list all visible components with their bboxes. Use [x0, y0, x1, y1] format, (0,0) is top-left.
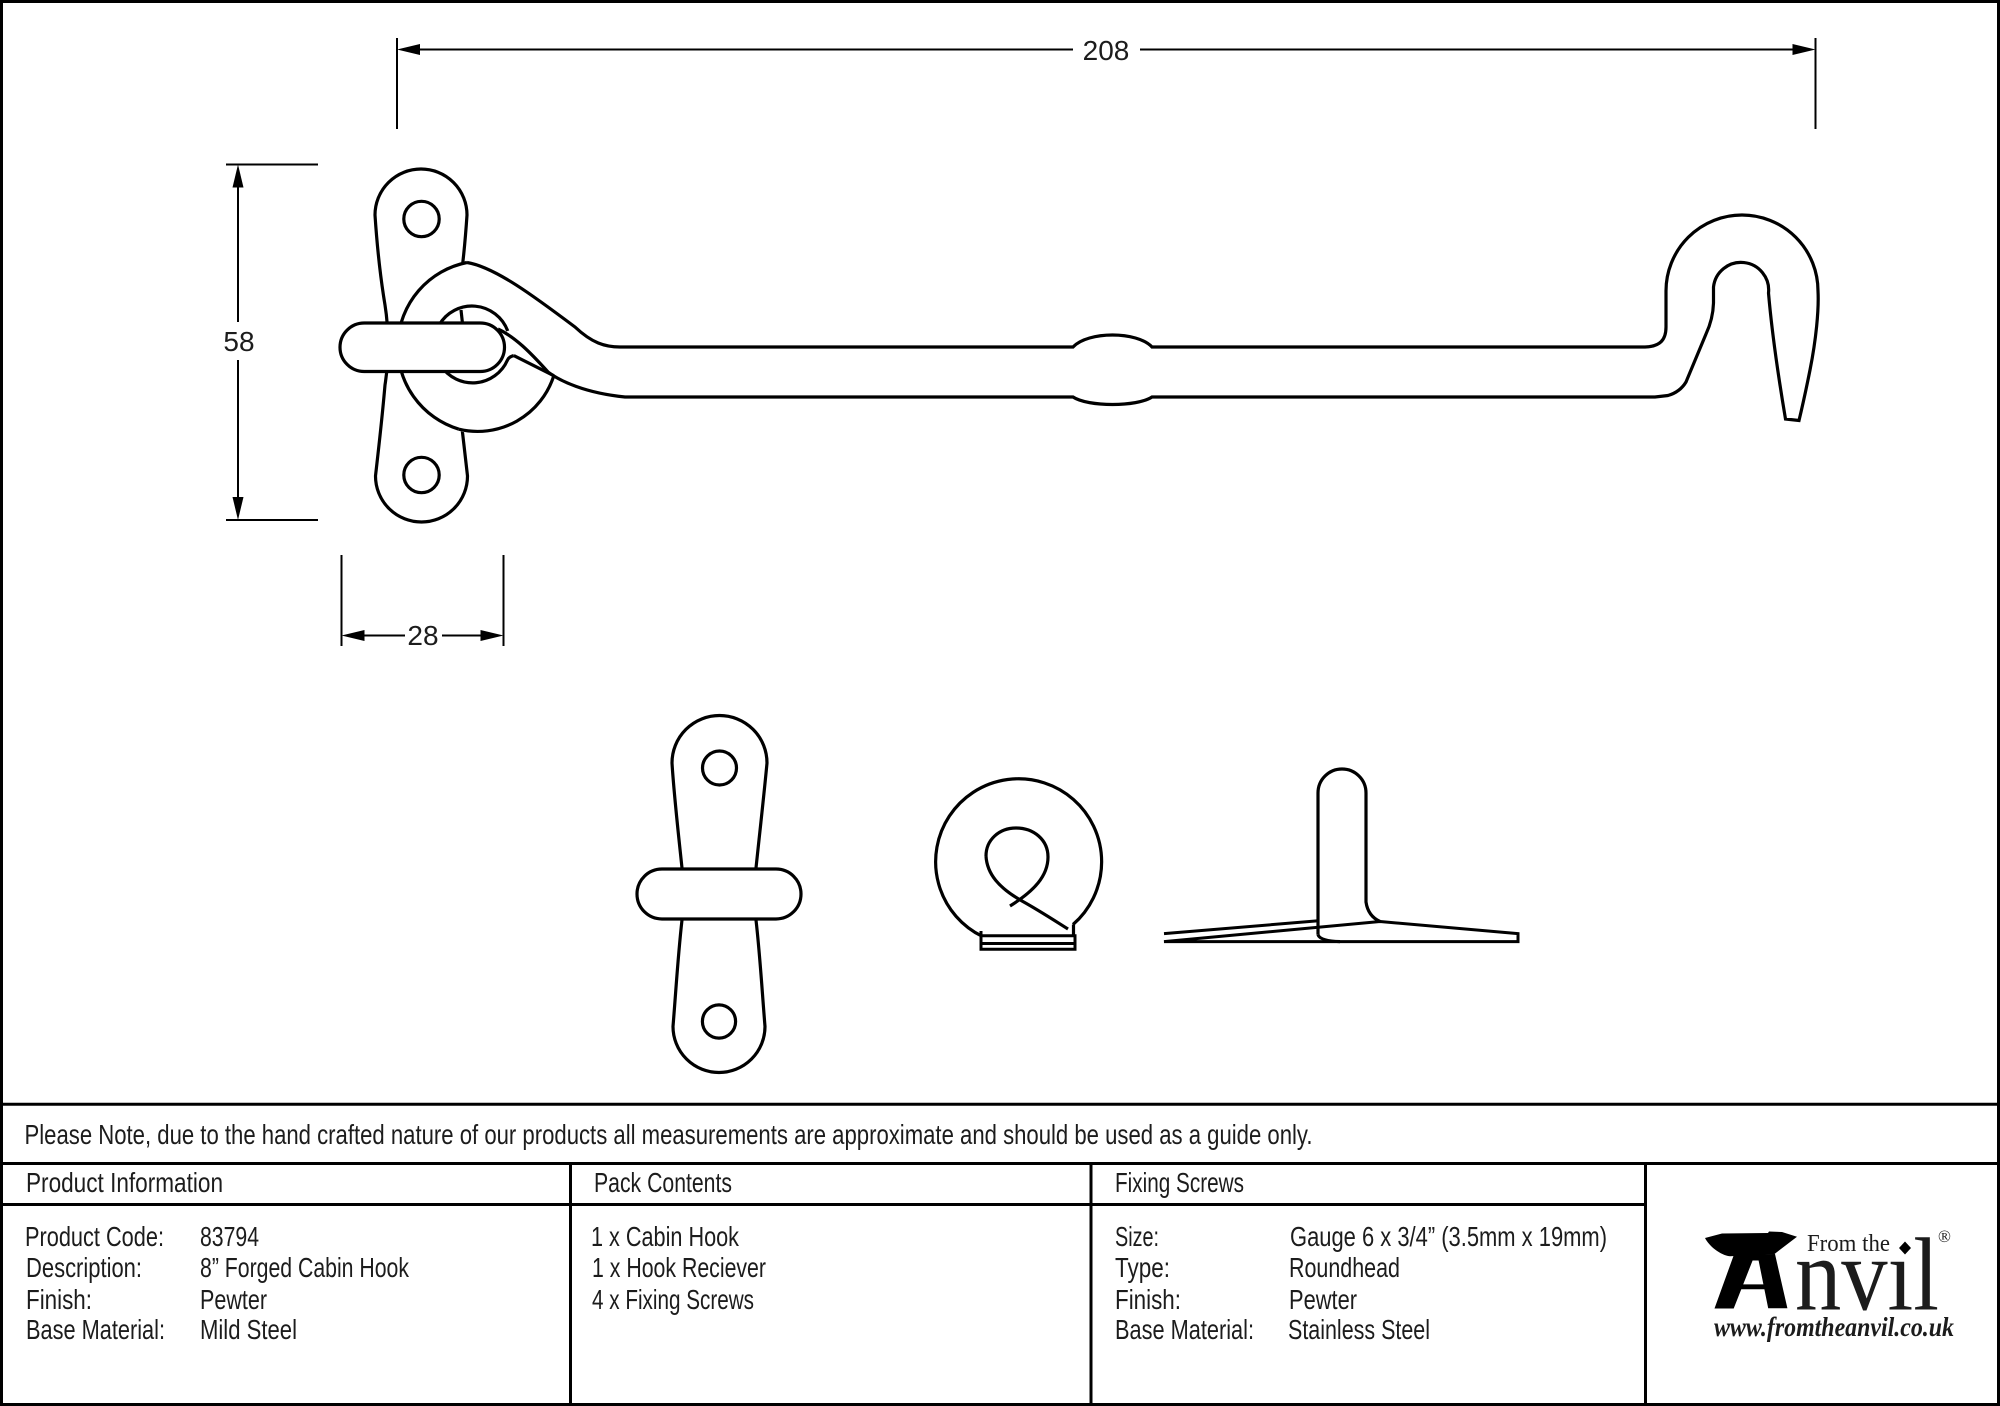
svg-text:Gauge 6 x 3/4” (3.5mm x 19mm): Gauge 6 x 3/4” (3.5mm x 19mm)	[1290, 1221, 1607, 1252]
svg-text:58: 58	[223, 326, 254, 357]
svg-text:83794: 83794	[200, 1221, 259, 1252]
svg-text:Please Note, due to the hand c: Please Note, due to the hand crafted nat…	[25, 1119, 1313, 1150]
svg-text:Pack Contents: Pack Contents	[594, 1167, 732, 1198]
svg-text:Stainless Steel: Stainless Steel	[1288, 1314, 1430, 1345]
svg-text:8” Forged Cabin Hook: 8” Forged Cabin Hook	[200, 1252, 410, 1283]
svg-text:Type:: Type:	[1115, 1252, 1170, 1283]
svg-text:1 x Cabin Hook: 1 x Cabin Hook	[591, 1221, 740, 1252]
svg-text:www.fromtheanvil.co.uk: www.fromtheanvil.co.uk	[1714, 1312, 1954, 1342]
svg-text:Description:: Description:	[26, 1252, 142, 1283]
svg-text:Pewter: Pewter	[200, 1284, 267, 1315]
svg-text:®: ®	[1938, 1227, 1951, 1246]
svg-text:Roundhead: Roundhead	[1289, 1252, 1400, 1283]
svg-text:208: 208	[1083, 35, 1130, 66]
svg-text:Product Information: Product Information	[26, 1167, 223, 1198]
svg-text:Mild Steel: Mild Steel	[200, 1314, 297, 1345]
svg-text:Size:: Size:	[1115, 1221, 1159, 1252]
svg-text:Finish:: Finish:	[26, 1284, 92, 1315]
svg-text:4 x Fixing Screws: 4 x Fixing Screws	[592, 1284, 754, 1315]
svg-text:28: 28	[407, 620, 438, 651]
svg-text:Finish:: Finish:	[1115, 1284, 1181, 1315]
svg-text:Product Code:: Product Code:	[25, 1221, 164, 1252]
svg-text:Fixing Screws: Fixing Screws	[1115, 1167, 1244, 1198]
svg-text:1 x Hook Reciever: 1 x Hook Reciever	[592, 1252, 766, 1283]
svg-text:Base Material:: Base Material:	[1115, 1314, 1254, 1345]
svg-text:Base Material:: Base Material:	[26, 1314, 165, 1345]
svg-text:Pewter: Pewter	[1289, 1284, 1357, 1315]
